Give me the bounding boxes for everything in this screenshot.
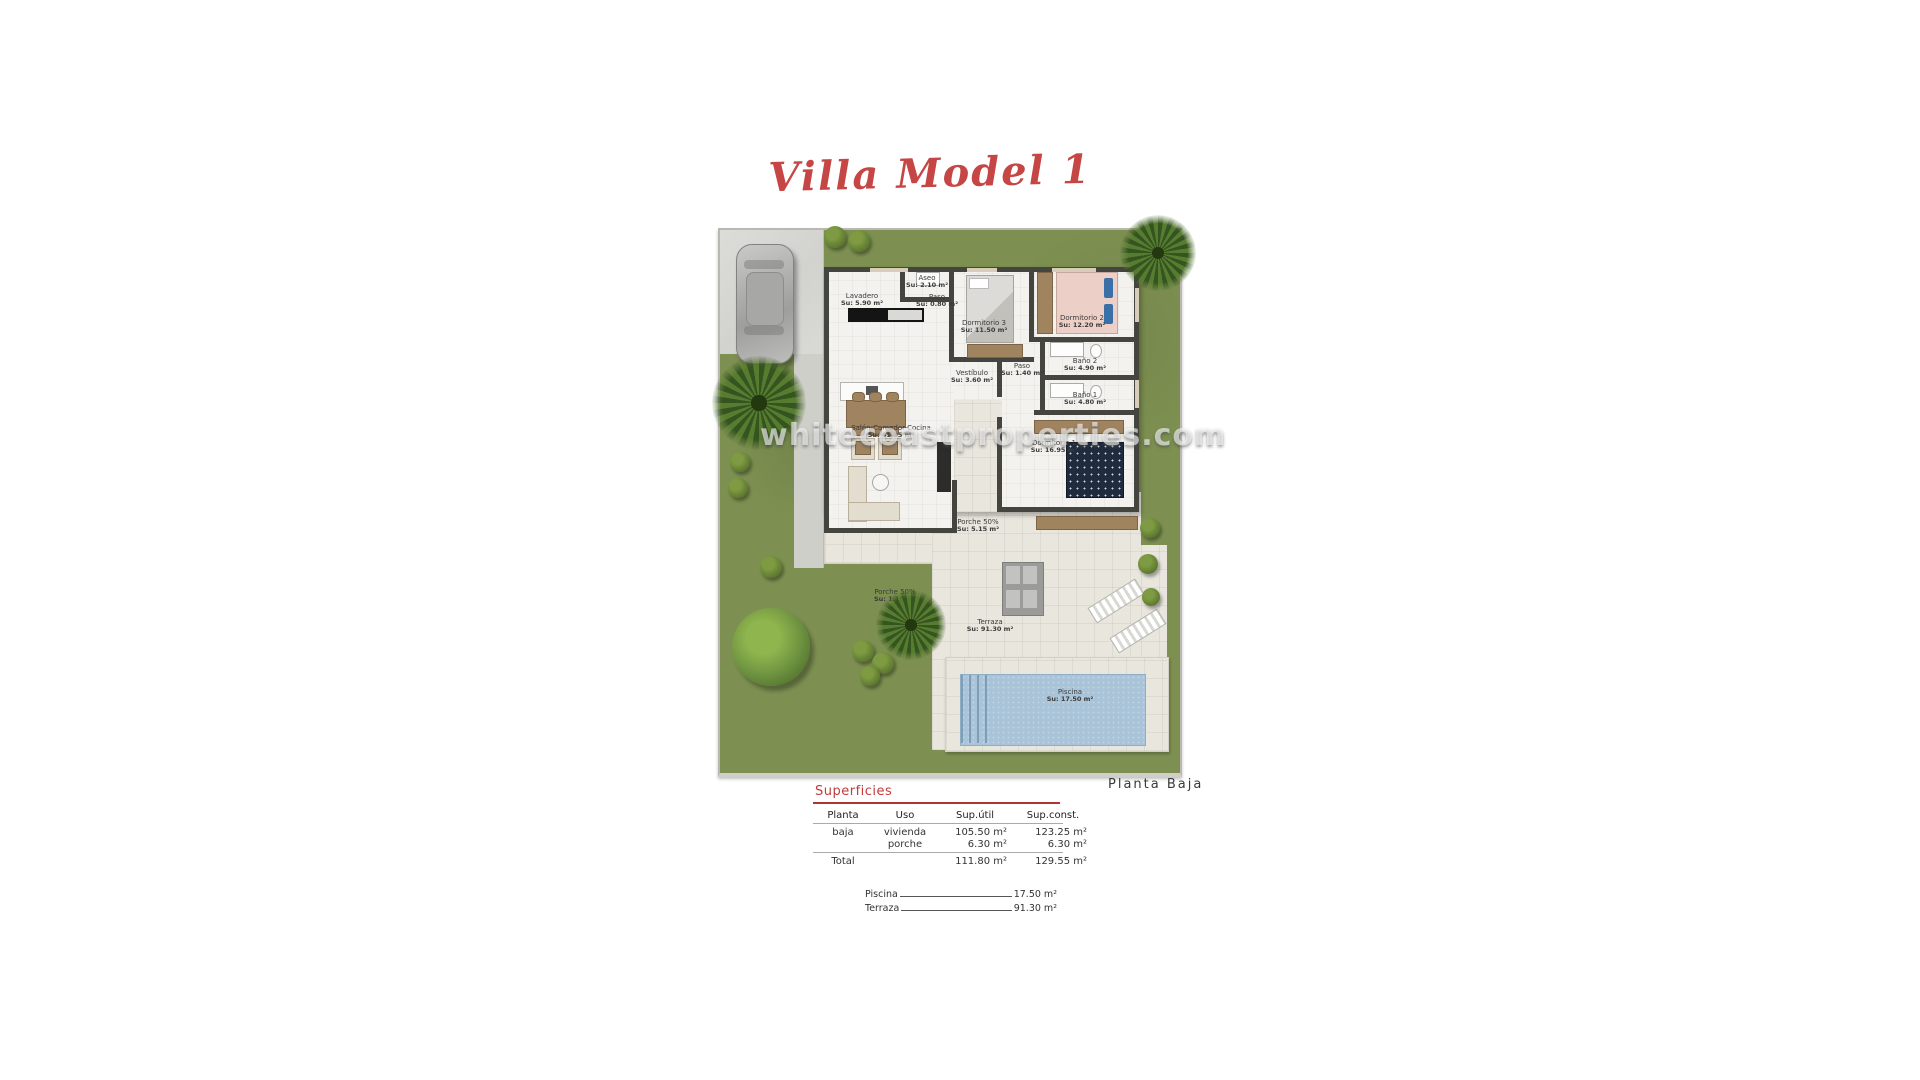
bath2-vanity (1050, 342, 1084, 357)
wall-hall-left (949, 267, 954, 362)
wardrobe-bed2 (1037, 272, 1053, 334)
room-label-vestibulo: VestíbuloSu: 3.60 m² (951, 369, 993, 385)
floor-label: Planta Baja (1108, 777, 1203, 792)
terrace-chair (1023, 590, 1037, 608)
superficies-underline (813, 802, 1060, 804)
wall-bath2-bottom (1045, 375, 1139, 380)
bush (728, 478, 748, 498)
car-windshield (744, 260, 784, 269)
dining-chair (869, 392, 882, 402)
window-top-3 (1052, 268, 1096, 272)
bush (848, 230, 870, 252)
room-label-aseo: AseoSu: 2.10 m² (906, 274, 948, 290)
terrace-chair (1006, 566, 1020, 584)
hall-floor (954, 400, 1002, 512)
area-notes: Piscina 17.50 m² Terraza 91.30 m² (865, 888, 1057, 916)
leader-line (900, 888, 1012, 897)
table-total-row: Total 111.80 m² 129.55 m² (813, 856, 1093, 867)
kitchen-counter-light (888, 310, 922, 320)
room-label-piscina: PiscinaSu: 17.50 m² (1047, 688, 1094, 704)
note-terraza: Terraza 91.30 m² (865, 902, 1057, 914)
col-header-planta: Planta (813, 810, 873, 821)
bush (730, 452, 750, 472)
bush (760, 556, 782, 578)
room-label-bano-2: Baño 2Su: 4.90 m² (1064, 357, 1106, 373)
bush (824, 226, 846, 248)
dining-chair (886, 392, 899, 402)
bush (1142, 588, 1160, 606)
palm-tree-bottom (876, 590, 946, 660)
superficies-heading: Superficies (815, 784, 892, 799)
wardrobe-bed3 (967, 344, 1023, 358)
room-label-bano-1: Baño 1Su: 4.80 m² (1064, 391, 1106, 407)
bush (860, 666, 880, 686)
watermark: whitecoastproperties.com (760, 418, 1180, 453)
table-divider (813, 823, 1063, 824)
room-label-lavadero: LavaderoSu: 5.90 m² (841, 292, 883, 308)
site-plan: LavaderoSu: 5.90 m² AseoSu: 2.10 m² Paso… (718, 228, 1182, 777)
bed-3-pillow (969, 278, 989, 289)
room-label-dormitorio-2: Dormitorio 2Su: 12.20 m² (1059, 314, 1106, 330)
car-roof (746, 272, 784, 326)
room-label-dormitorio-3: Dormitorio 3Su: 11.50 m² (961, 319, 1008, 335)
bush (1138, 554, 1158, 574)
wall-bottom-living (824, 528, 954, 533)
total-label: Total (813, 856, 873, 867)
window-top-2 (967, 268, 997, 272)
wall-bath1-bottom (1034, 410, 1139, 415)
room-label-paso-2: PasoSu: 1.40 m² (1001, 362, 1043, 378)
room-label-terraza: TerrazaSu: 91.30 m² (967, 618, 1014, 634)
col-header-sup-util: Sup.útil (937, 810, 1013, 821)
bush (852, 640, 874, 662)
room-label-porche-mid: Porche 50%Su: 5.15 m² (957, 518, 999, 534)
note-piscina: Piscina 17.50 m² (865, 888, 1057, 900)
window-top-1 (870, 268, 908, 272)
col-header-sup-const: Sup.const. (1013, 810, 1093, 821)
palm-tree-top-right (1120, 215, 1196, 291)
table-row: porche 6.30 m² 6.30 m² (813, 839, 1093, 850)
col-header-uso: Uso (873, 810, 937, 821)
table-row: baja vivienda 105.50 m² 123.25 m² (813, 827, 1093, 838)
wall-bed3-right (1029, 267, 1034, 342)
bed-2-pillow-blue (1104, 278, 1113, 298)
terrace-chair (1006, 590, 1020, 608)
table-header-row: Planta Uso Sup.útil Sup.const. (813, 810, 1093, 821)
dining-chair (852, 392, 865, 402)
bush (1140, 518, 1160, 538)
wall-bottom-bed1 (1002, 507, 1139, 512)
tree-bottom-left (732, 608, 810, 686)
coffee-table (872, 474, 889, 491)
page: Villa Model 1 (0, 0, 1920, 1080)
room-label-paso: PasoSu: 0.80 m² (916, 293, 958, 309)
window-right-1 (1135, 288, 1139, 322)
table-divider (813, 852, 1063, 853)
sideboard-terrace (1036, 516, 1138, 530)
sofa-chaise (848, 502, 900, 521)
leader-line (901, 902, 1011, 911)
superficies-table: Planta Uso Sup.útil Sup.const. baja vivi… (813, 810, 1093, 867)
car-rear-window (744, 326, 784, 335)
window-right-2 (1135, 380, 1139, 408)
page-title: Villa Model 1 (699, 144, 1160, 203)
bath2-toilet (1090, 344, 1102, 358)
terrace-chair (1023, 566, 1037, 584)
wall-left (824, 267, 829, 533)
pool-steps (961, 675, 989, 743)
